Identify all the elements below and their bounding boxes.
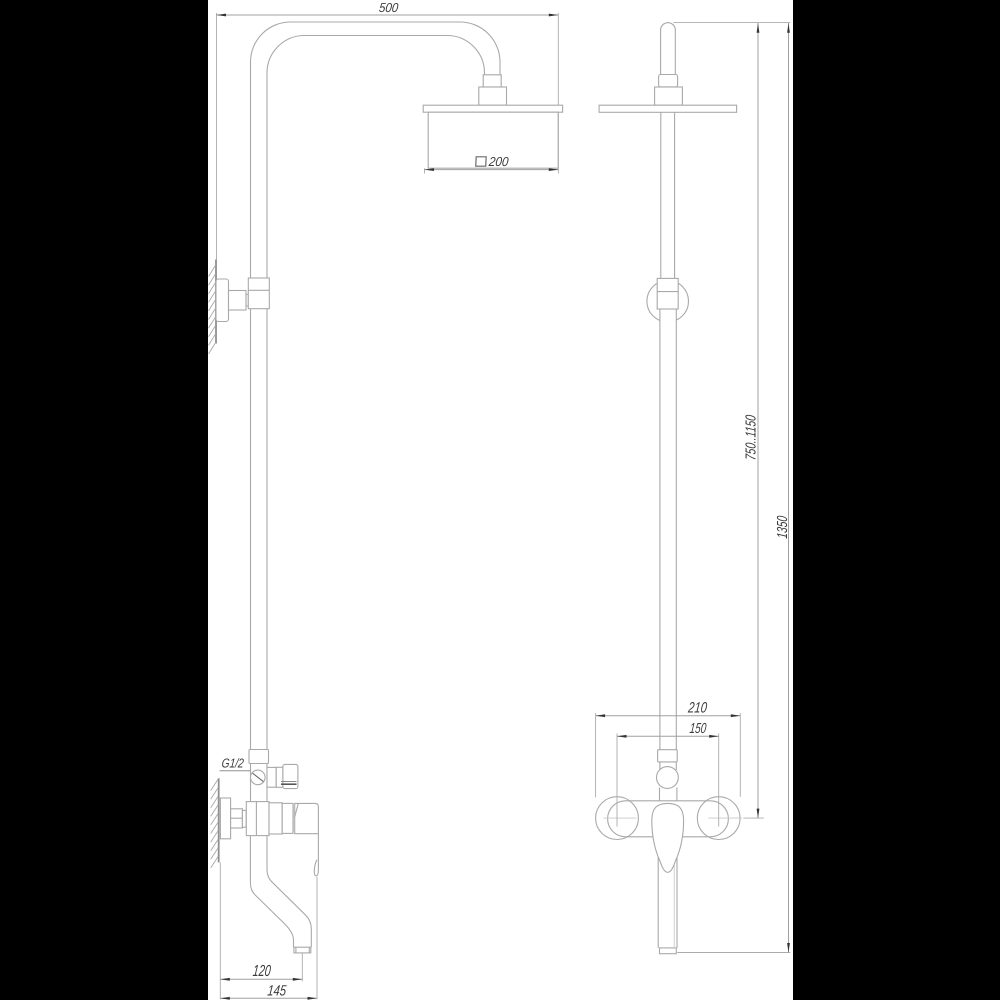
svg-text:145: 145 [267,983,288,1000]
svg-text:G1/2: G1/2 [221,755,245,770]
svg-text:750..1150: 750..1150 [743,414,759,461]
svg-text:210: 210 [687,699,709,716]
svg-text:1350: 1350 [775,515,791,539]
svg-text:200: 200 [487,154,510,169]
svg-text:500: 500 [378,0,399,15]
svg-text:120: 120 [252,962,272,980]
svg-text:150: 150 [689,721,707,737]
